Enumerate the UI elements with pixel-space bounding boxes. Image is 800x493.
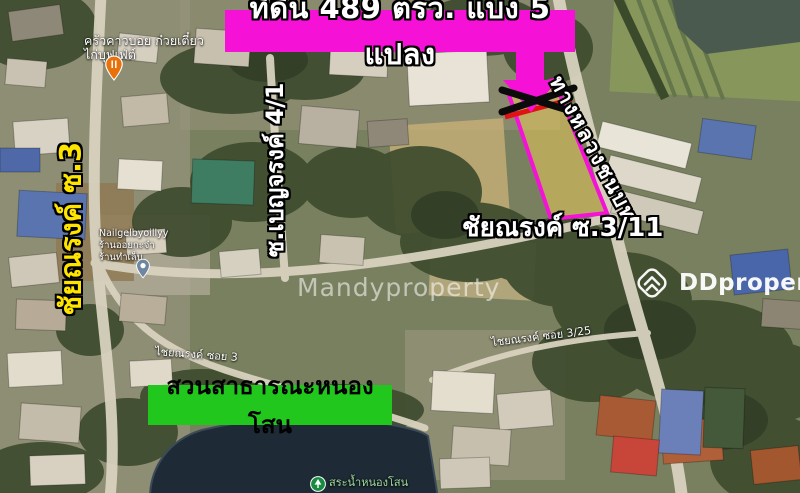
watermark-mandyproperty: Mandyproperty [297, 274, 500, 303]
park-banner-text: สวนสาธารณะหนองโสน [148, 366, 392, 444]
restaurant-label: ครัวคาวบอย ก๋วยเตี๋ยว ไก่บุฟเฟ่ต์ [84, 34, 204, 63]
title-banner-text: ที่ดิน 489 ตรว. แบ่ง 5 แปลง [225, 0, 575, 77]
map-canvas: ที่ดิน 489 ตรว. แบ่ง 5 แปลง สวนสาธารณะหน… [0, 0, 800, 493]
road-label-chainarong-soi3: ชัยณรงค์ ซ.3 [54, 136, 87, 322]
nail-salon-label-line2: ร้านออยกะจ๋า [99, 240, 168, 252]
title-banner: ที่ดิน 489 ตรว. แบ่ง 5 แปลง [225, 10, 575, 52]
road-label-benjarong-4-1: ซ.เบญจรงค์ 4/1 [262, 74, 290, 266]
nail-salon-label-line1: Nailgelbyoillyy [99, 228, 168, 240]
park-banner: สวนสาธารณะหนองโสน [148, 385, 392, 425]
nail-salon-label: Nailgelbyoillyy ร้านออยกะจ๋า ร้านทำเล็บ [99, 228, 168, 264]
ddproperty-logo-icon [633, 264, 671, 302]
nail-salon-pin-icon [136, 258, 150, 279]
watermark-ddproperty: DDproperty [633, 264, 800, 302]
ddproperty-text: DDproperty [679, 270, 800, 296]
nail-salon-label-line3: ร้านทำเล็บ [99, 252, 168, 264]
road-label-chainarong-soi3-11: ชัยณรงค์ ซ.3/11 [462, 214, 652, 244]
park-pin-icon [310, 476, 326, 492]
restaurant-label-line2: ไก่บุฟเฟ่ต์ [84, 48, 204, 62]
pond-label: สระน้ำหนองโสน [329, 477, 408, 490]
restaurant-pin-icon [105, 55, 123, 81]
